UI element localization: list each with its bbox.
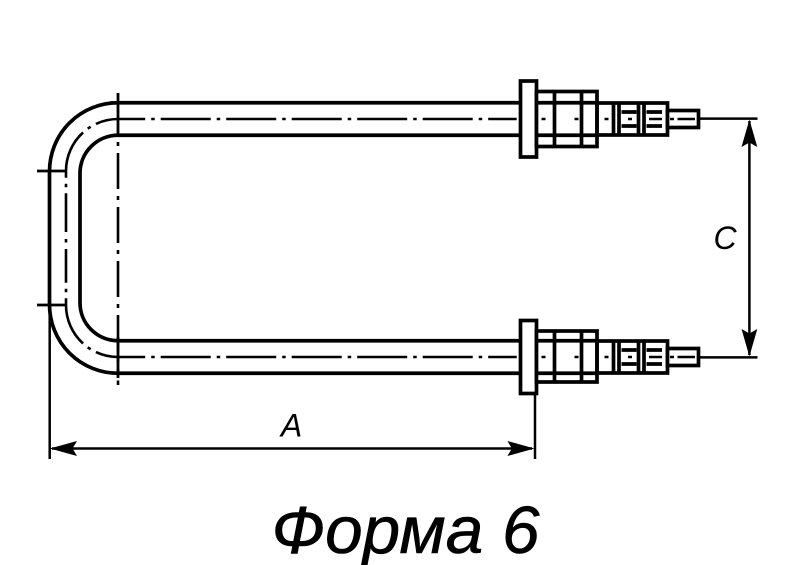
svg-text:Форма 6: Форма 6 — [272, 493, 541, 565]
svg-text:A: A — [279, 408, 302, 444]
svg-text:C: C — [713, 220, 737, 256]
